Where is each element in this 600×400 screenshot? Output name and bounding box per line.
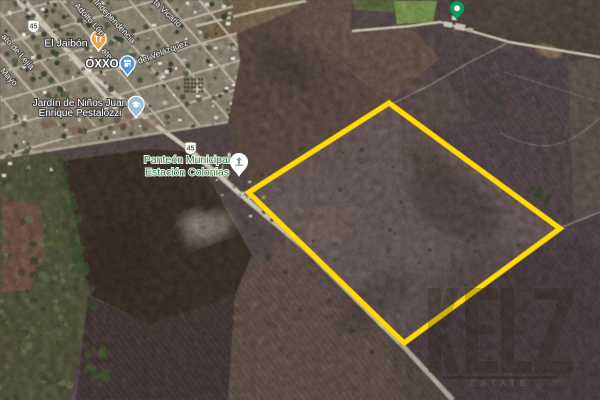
svg-text:Panteón Municipal: Panteón Municipal <box>144 154 230 166</box>
svg-text:45: 45 <box>30 24 38 31</box>
svg-text:Enrique Pestalozzi: Enrique Pestalozzi <box>39 108 122 119</box>
svg-text:Estación Colonias: Estación Colonias <box>145 167 229 179</box>
svg-text:OXXO: OXXO <box>85 59 118 71</box>
svg-text:45: 45 <box>187 146 195 153</box>
svg-text:El Jaibón: El Jaibón <box>44 38 87 50</box>
svg-text:ESTATE: ESTATE <box>470 379 530 388</box>
